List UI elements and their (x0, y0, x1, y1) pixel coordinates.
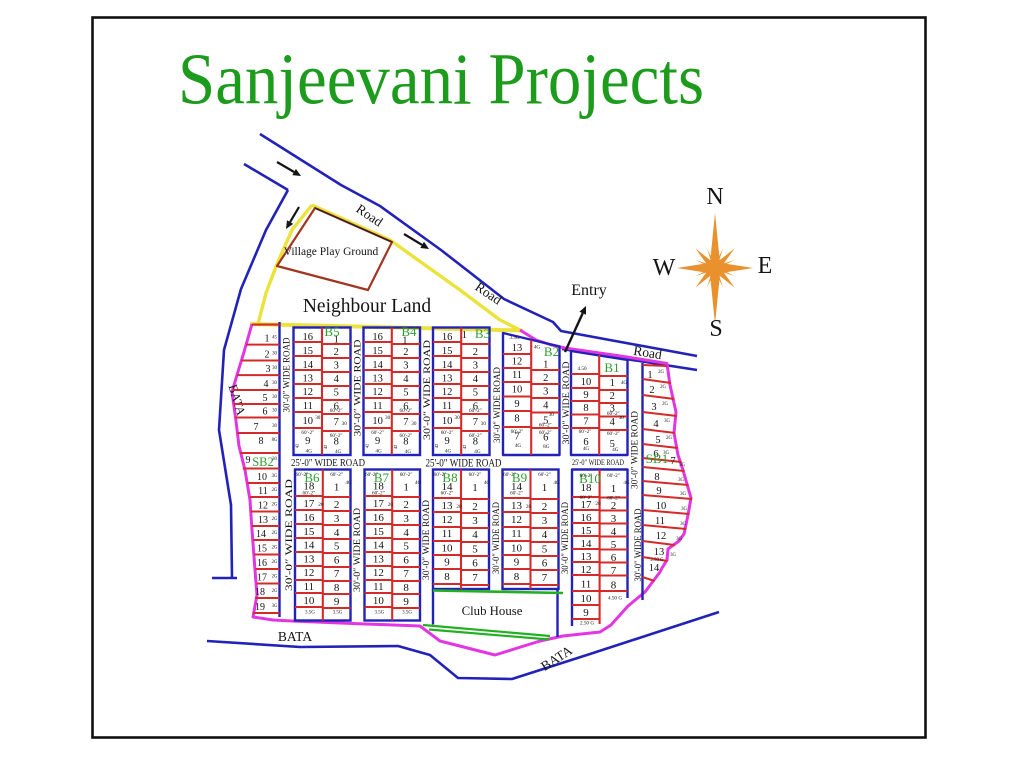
svg-text:3G: 3G (681, 507, 687, 512)
svg-text:30: 30 (481, 421, 487, 427)
svg-text:6: 6 (472, 558, 478, 570)
svg-text:9: 9 (444, 436, 449, 447)
svg-text:13: 13 (442, 374, 453, 385)
svg-text:3.5G: 3.5G (374, 611, 384, 616)
svg-text:5: 5 (472, 544, 478, 556)
svg-text:17: 17 (581, 499, 593, 511)
svg-text:2: 2 (649, 385, 654, 396)
svg-text:30'-0″ WIDE ROAD: 30'-0″ WIDE ROAD (352, 508, 363, 592)
svg-text:S: S (709, 316, 722, 342)
svg-text:4G: 4G (345, 480, 352, 486)
svg-text:42: 42 (393, 444, 398, 449)
svg-text:3.5G: 3.5G (402, 611, 412, 616)
svg-text:5: 5 (334, 541, 340, 553)
svg-text:3: 3 (334, 513, 340, 525)
svg-text:2: 2 (265, 350, 270, 361)
svg-text:13: 13 (511, 500, 523, 512)
svg-text:1: 1 (543, 360, 548, 371)
svg-text:3G: 3G (663, 451, 669, 456)
svg-text:4: 4 (473, 374, 479, 385)
svg-text:4: 4 (334, 527, 340, 539)
svg-text:2.50 G: 2.50 G (650, 558, 664, 563)
svg-text:2: 2 (542, 501, 548, 513)
svg-text:4: 4 (610, 417, 616, 428)
svg-text:2: 2 (473, 347, 478, 358)
svg-text:10: 10 (257, 472, 267, 483)
svg-text:2G: 2G (662, 402, 668, 407)
svg-text:3: 3 (543, 387, 548, 398)
svg-text:12: 12 (303, 387, 314, 398)
svg-text:16: 16 (303, 512, 315, 524)
svg-text:BATA: BATA (278, 629, 312, 644)
svg-text:30: 30 (272, 352, 277, 357)
svg-text:3G: 3G (680, 522, 686, 527)
svg-text:11: 11 (304, 581, 315, 593)
svg-text:1: 1 (611, 483, 617, 495)
svg-text:30: 30 (549, 412, 555, 418)
svg-text:60′-2″: 60′-2″ (607, 473, 620, 479)
svg-text:9: 9 (514, 557, 520, 569)
svg-text:5: 5 (263, 393, 268, 404)
svg-text:3G: 3G (272, 474, 278, 479)
svg-text:60′-2″: 60′-2″ (302, 491, 315, 497)
svg-text:N: N (706, 184, 723, 210)
svg-text:5: 5 (334, 388, 339, 399)
svg-text:7: 7 (334, 568, 340, 580)
svg-text:25'-0″ WIDE ROAD: 25'-0″ WIDE ROAD (572, 458, 624, 467)
svg-text:3.3G: 3.3G (509, 335, 519, 341)
svg-text:11: 11 (373, 581, 384, 593)
svg-text:3G: 3G (679, 463, 685, 468)
svg-text:10: 10 (512, 385, 523, 396)
svg-text:W: W (653, 255, 676, 281)
svg-text:10: 10 (656, 501, 667, 512)
svg-text:60′-2″: 60′-2″ (441, 430, 454, 436)
svg-text:60′-2″: 60′-2″ (469, 472, 482, 478)
svg-text:7: 7 (334, 417, 339, 428)
svg-text:3: 3 (473, 361, 478, 372)
svg-text:1: 1 (403, 482, 409, 494)
svg-text:60′-2″: 60′-2″ (295, 472, 308, 478)
svg-text:3G: 3G (664, 419, 670, 424)
svg-text:15: 15 (581, 525, 593, 537)
svg-text:7: 7 (542, 572, 548, 584)
svg-text:20: 20 (526, 504, 532, 510)
svg-text:42: 42 (295, 443, 300, 448)
svg-text:60′-2″: 60′-2″ (399, 433, 412, 439)
svg-text:3: 3 (403, 361, 408, 372)
svg-text:3: 3 (542, 515, 548, 527)
svg-text:60′-2″: 60′-2″ (330, 472, 343, 478)
svg-text:30'-0″ WIDE ROAD: 30'-0″ WIDE ROAD (633, 509, 644, 582)
svg-text:4: 4 (543, 401, 549, 412)
svg-text:SB2: SB2 (252, 455, 274, 469)
svg-text:30: 30 (342, 421, 348, 427)
svg-text:30: 30 (455, 415, 461, 421)
svg-text:11: 11 (512, 370, 522, 381)
svg-text:4G: 4G (583, 446, 590, 452)
svg-text:3: 3 (403, 513, 409, 525)
svg-text:13: 13 (581, 551, 593, 563)
svg-text:60′-2″: 60′-2″ (539, 423, 552, 429)
svg-text:9: 9 (583, 607, 589, 619)
svg-text:17: 17 (257, 573, 267, 584)
svg-text:6: 6 (611, 552, 617, 564)
svg-text:60′-2″: 60′-2″ (580, 495, 593, 501)
svg-text:2: 2 (334, 347, 339, 358)
svg-text:60′-2″: 60′-2″ (441, 491, 454, 497)
svg-text:60′-2″: 60′-2″ (330, 408, 343, 414)
svg-text:4G: 4G (335, 449, 342, 455)
svg-text:20: 20 (318, 502, 324, 508)
svg-text:2: 2 (334, 499, 340, 511)
svg-text:13: 13 (372, 374, 383, 385)
svg-text:14: 14 (442, 360, 453, 371)
svg-text:14: 14 (581, 538, 593, 550)
svg-text:10: 10 (581, 593, 593, 605)
svg-text:10: 10 (442, 543, 454, 555)
svg-text:19: 19 (255, 602, 265, 613)
svg-text:10: 10 (442, 416, 453, 427)
svg-text:1: 1 (647, 370, 652, 381)
svg-text:8: 8 (583, 403, 588, 414)
svg-text:5: 5 (655, 435, 660, 446)
svg-text:15: 15 (303, 346, 314, 357)
svg-text:30'-0″ WIDE ROAD: 30'-0″ WIDE ROAD (492, 367, 503, 443)
svg-text:60′-2″: 60′-2″ (511, 429, 524, 435)
svg-text:14: 14 (373, 540, 385, 552)
svg-text:13: 13 (512, 343, 523, 354)
svg-text:5: 5 (611, 539, 617, 551)
svg-text:20: 20 (456, 504, 462, 510)
svg-text:30'-0″ WIDE ROAD: 30'-0″ WIDE ROAD (560, 502, 571, 574)
svg-text:9: 9 (246, 455, 251, 466)
svg-text:15: 15 (303, 526, 315, 538)
svg-text:16: 16 (373, 512, 385, 524)
svg-text:15: 15 (372, 346, 383, 357)
svg-text:13: 13 (654, 547, 665, 558)
svg-text:16: 16 (442, 332, 453, 343)
svg-text:18: 18 (255, 587, 265, 598)
svg-text:2G: 2G (272, 503, 278, 508)
svg-text:2G: 2G (272, 546, 278, 551)
svg-text:Village Play Ground: Village Play Ground (284, 246, 379, 258)
svg-text:4G: 4G (474, 449, 481, 455)
svg-text:30'-0″ WIDE ROAD: 30'-0″ WIDE ROAD (491, 502, 502, 574)
svg-text:42: 42 (365, 443, 370, 448)
svg-text:10: 10 (372, 416, 383, 427)
svg-text:30: 30 (272, 366, 277, 371)
svg-text:E: E (758, 253, 773, 279)
svg-text:14: 14 (649, 563, 660, 574)
svg-text:17: 17 (303, 498, 315, 510)
svg-text:Club House: Club House (462, 604, 523, 618)
svg-text:6: 6 (334, 555, 340, 567)
svg-text:Entry: Entry (571, 282, 607, 299)
svg-text:30: 30 (272, 381, 277, 386)
svg-text:8G: 8G (272, 438, 278, 443)
svg-text:20: 20 (388, 502, 394, 508)
svg-text:Sanjeevani Projects: Sanjeevani Projects (178, 39, 704, 120)
svg-text:1: 1 (402, 336, 407, 347)
svg-text:4G: 4G (306, 449, 313, 455)
svg-text:4.50: 4.50 (577, 366, 586, 372)
svg-text:4: 4 (403, 374, 409, 385)
svg-text:11: 11 (373, 401, 383, 412)
svg-text:9: 9 (375, 436, 380, 447)
svg-text:60′-2″: 60′-2″ (510, 491, 523, 497)
svg-text:14: 14 (303, 360, 314, 371)
svg-text:11: 11 (442, 401, 452, 412)
svg-text:2: 2 (611, 500, 617, 512)
svg-text:17: 17 (373, 498, 385, 510)
svg-text:1: 1 (334, 482, 340, 494)
svg-text:4G: 4G (405, 449, 412, 455)
svg-text:2: 2 (403, 499, 409, 511)
svg-text:4: 4 (472, 529, 478, 541)
svg-text:12: 12 (581, 564, 592, 576)
svg-text:1: 1 (265, 334, 270, 345)
svg-text:2G: 2G (666, 436, 672, 441)
svg-text:12: 12 (373, 567, 384, 579)
svg-text:9: 9 (514, 399, 519, 410)
svg-text:5: 5 (542, 544, 548, 556)
svg-text:30: 30 (272, 457, 277, 462)
svg-text:B1: B1 (604, 360, 619, 375)
svg-text:4: 4 (611, 526, 617, 538)
svg-text:7: 7 (611, 565, 617, 577)
svg-text:7: 7 (473, 417, 478, 428)
svg-text:25'-0″ WIDE ROAD: 25'-0″ WIDE ROAD (291, 458, 365, 469)
svg-text:8: 8 (654, 472, 659, 483)
svg-text:6: 6 (542, 558, 548, 570)
svg-text:6: 6 (263, 407, 268, 418)
svg-text:60′-2″: 60′-2″ (301, 430, 314, 436)
svg-text:13: 13 (303, 554, 315, 566)
svg-text:60′-2″: 60′-2″ (538, 472, 551, 478)
svg-text:15: 15 (257, 544, 267, 555)
svg-text:2.50 G: 2.50 G (580, 621, 594, 627)
svg-text:60′-2″: 60′-2″ (372, 491, 385, 497)
svg-text:8: 8 (403, 582, 409, 594)
svg-text:1: 1 (610, 378, 615, 389)
svg-text:8: 8 (444, 571, 450, 583)
svg-text:60′-2″: 60′-2″ (580, 473, 593, 479)
svg-text:8: 8 (259, 436, 264, 447)
svg-text:4G: 4G (621, 380, 628, 386)
svg-text:3: 3 (651, 402, 656, 413)
svg-text:4G: 4G (553, 480, 560, 486)
svg-text:4: 4 (403, 527, 409, 539)
svg-text:8: 8 (514, 571, 520, 583)
svg-text:30'-0″ WIDE ROAD: 30'-0″ WIDE ROAD (282, 338, 293, 413)
svg-text:9: 9 (305, 436, 310, 447)
svg-text:12: 12 (372, 387, 383, 398)
svg-text:12: 12 (511, 514, 522, 526)
svg-text:42: 42 (323, 444, 328, 449)
svg-text:11: 11 (581, 579, 592, 591)
svg-text:30'-0″ WIDE ROAD: 30'-0″ WIDE ROAD (421, 500, 432, 580)
svg-text:10: 10 (303, 416, 314, 427)
svg-text:12: 12 (442, 514, 453, 526)
svg-text:4: 4 (542, 529, 548, 541)
svg-text:11: 11 (258, 486, 268, 497)
svg-text:4.50 G: 4.50 G (608, 596, 622, 602)
svg-text:8G: 8G (543, 444, 550, 450)
svg-text:3: 3 (611, 513, 617, 525)
svg-text:60′-2″: 60′-2″ (365, 472, 378, 478)
svg-text:5: 5 (473, 388, 478, 399)
svg-text:4G: 4G (612, 447, 619, 453)
svg-text:4G: 4G (415, 480, 422, 486)
svg-text:30'-0″ WIDE ROAD: 30'-0″ WIDE ROAD (284, 479, 295, 591)
svg-text:42: 42 (462, 444, 467, 449)
svg-text:4G: 4G (515, 443, 522, 449)
svg-text:B2: B2 (544, 344, 559, 359)
svg-text:25'-0″ WIDE ROAD: 25'-0″ WIDE ROAD (426, 458, 502, 470)
svg-text:3G: 3G (670, 553, 676, 558)
svg-text:2G: 2G (272, 560, 278, 565)
svg-text:30'-0″ WIDE ROAD: 30'-0″ WIDE ROAD (561, 362, 572, 445)
svg-text:2: 2 (403, 347, 408, 358)
svg-text:7: 7 (254, 422, 259, 433)
svg-text:2G: 2G (272, 531, 278, 536)
svg-text:9: 9 (444, 557, 450, 569)
svg-text:14: 14 (256, 529, 266, 540)
svg-text:7: 7 (403, 417, 408, 428)
svg-text:5: 5 (403, 388, 408, 399)
svg-text:60′-2″: 60′-2″ (400, 472, 413, 478)
svg-text:4G: 4G (534, 345, 541, 351)
svg-text:60′-2″: 60′-2″ (539, 430, 552, 436)
svg-text:5: 5 (403, 541, 409, 553)
svg-text:12: 12 (656, 531, 667, 542)
svg-text:13: 13 (373, 554, 385, 566)
svg-text:60′-2″: 60′-2″ (607, 431, 620, 437)
svg-text:9: 9 (403, 596, 409, 608)
svg-text:10: 10 (303, 595, 315, 607)
svg-text:3: 3 (334, 361, 339, 372)
svg-text:1: 1 (462, 330, 467, 341)
svg-text:1: 1 (472, 482, 478, 494)
svg-text:60′-2″: 60′-2″ (469, 433, 482, 439)
svg-text:3.5G: 3.5G (305, 611, 315, 616)
svg-text:20: 20 (595, 501, 601, 507)
svg-text:16: 16 (372, 332, 383, 343)
svg-text:4: 4 (334, 374, 340, 385)
svg-text:14: 14 (303, 540, 315, 552)
svg-text:45: 45 (272, 336, 277, 341)
svg-text:2G: 2G (272, 488, 278, 493)
svg-text:1: 1 (542, 482, 548, 494)
svg-text:2: 2 (472, 501, 478, 513)
svg-text:11: 11 (442, 528, 453, 540)
svg-text:1: 1 (334, 335, 339, 346)
svg-text:60′-2″: 60′-2″ (399, 408, 412, 414)
svg-text:30: 30 (411, 421, 417, 427)
svg-text:Neighbour Land: Neighbour Land (303, 296, 432, 317)
svg-text:12: 12 (258, 501, 268, 512)
svg-text:15: 15 (442, 346, 453, 357)
svg-text:11: 11 (655, 516, 665, 527)
svg-text:60′-2″: 60′-2″ (607, 496, 620, 502)
svg-text:7: 7 (472, 572, 478, 584)
svg-text:2: 2 (543, 373, 548, 384)
svg-text:3: 3 (266, 364, 271, 375)
svg-text:30'-0″ WIDE ROAD: 30'-0″ WIDE ROAD (422, 340, 433, 440)
svg-text:12: 12 (442, 387, 453, 398)
svg-text:2: 2 (610, 391, 615, 402)
svg-text:42: 42 (434, 443, 439, 448)
svg-text:60′-2″: 60′-2″ (434, 472, 447, 478)
svg-text:30: 30 (385, 415, 391, 421)
svg-text:10: 10 (511, 543, 523, 555)
svg-text:7: 7 (403, 568, 409, 580)
svg-text:16: 16 (257, 558, 267, 569)
svg-text:11: 11 (511, 528, 522, 540)
svg-text:4G: 4G (484, 480, 491, 486)
svg-text:8: 8 (611, 580, 617, 592)
svg-text:2G: 2G (660, 385, 666, 390)
svg-text:4G: 4G (375, 449, 382, 455)
svg-text:12: 12 (512, 357, 523, 368)
svg-text:10: 10 (373, 595, 385, 607)
svg-text:16: 16 (303, 332, 314, 343)
svg-text:8: 8 (514, 414, 519, 425)
svg-text:16: 16 (581, 512, 593, 524)
svg-text:8: 8 (334, 582, 340, 594)
svg-text:2G: 2G (272, 589, 278, 594)
svg-text:3G: 3G (678, 478, 684, 483)
svg-text:13: 13 (258, 515, 268, 526)
svg-text:3G: 3G (272, 604, 278, 609)
svg-text:9: 9 (656, 486, 661, 497)
svg-text:3.5G: 3.5G (333, 611, 343, 616)
svg-text:60′-2″: 60′-2″ (503, 472, 516, 478)
svg-text:13: 13 (303, 374, 314, 385)
svg-text:4: 4 (653, 419, 659, 430)
svg-text:60′-2″: 60′-2″ (330, 433, 343, 439)
svg-text:6: 6 (403, 555, 409, 567)
svg-text:9: 9 (334, 596, 340, 608)
svg-text:14: 14 (372, 360, 383, 371)
svg-text:2G: 2G (658, 370, 664, 375)
svg-text:11: 11 (303, 401, 313, 412)
svg-text:30'-0″ WIDE ROAD: 30'-0″ WIDE ROAD (630, 411, 641, 489)
svg-text:30: 30 (315, 415, 321, 421)
svg-text:2G: 2G (272, 575, 278, 580)
svg-text:30: 30 (272, 424, 277, 429)
svg-text:3G: 3G (676, 537, 682, 542)
svg-text:3G: 3G (680, 492, 686, 497)
svg-text:4G: 4G (445, 449, 452, 455)
svg-text:15: 15 (373, 526, 385, 538)
svg-text:7: 7 (670, 456, 675, 467)
svg-text:10: 10 (581, 377, 592, 388)
svg-text:60′-2″: 60′-2″ (469, 408, 482, 414)
svg-text:13: 13 (442, 500, 454, 512)
svg-text:30: 30 (619, 415, 625, 421)
svg-text:B3: B3 (475, 326, 490, 341)
svg-text:7: 7 (583, 417, 588, 428)
svg-text:30: 30 (272, 395, 277, 400)
svg-text:30: 30 (272, 409, 277, 414)
svg-text:3: 3 (472, 515, 478, 527)
svg-text:12: 12 (303, 567, 314, 579)
svg-text:60′-2″: 60′-2″ (579, 429, 592, 435)
svg-text:4: 4 (264, 379, 269, 390)
svg-text:9: 9 (583, 390, 588, 401)
